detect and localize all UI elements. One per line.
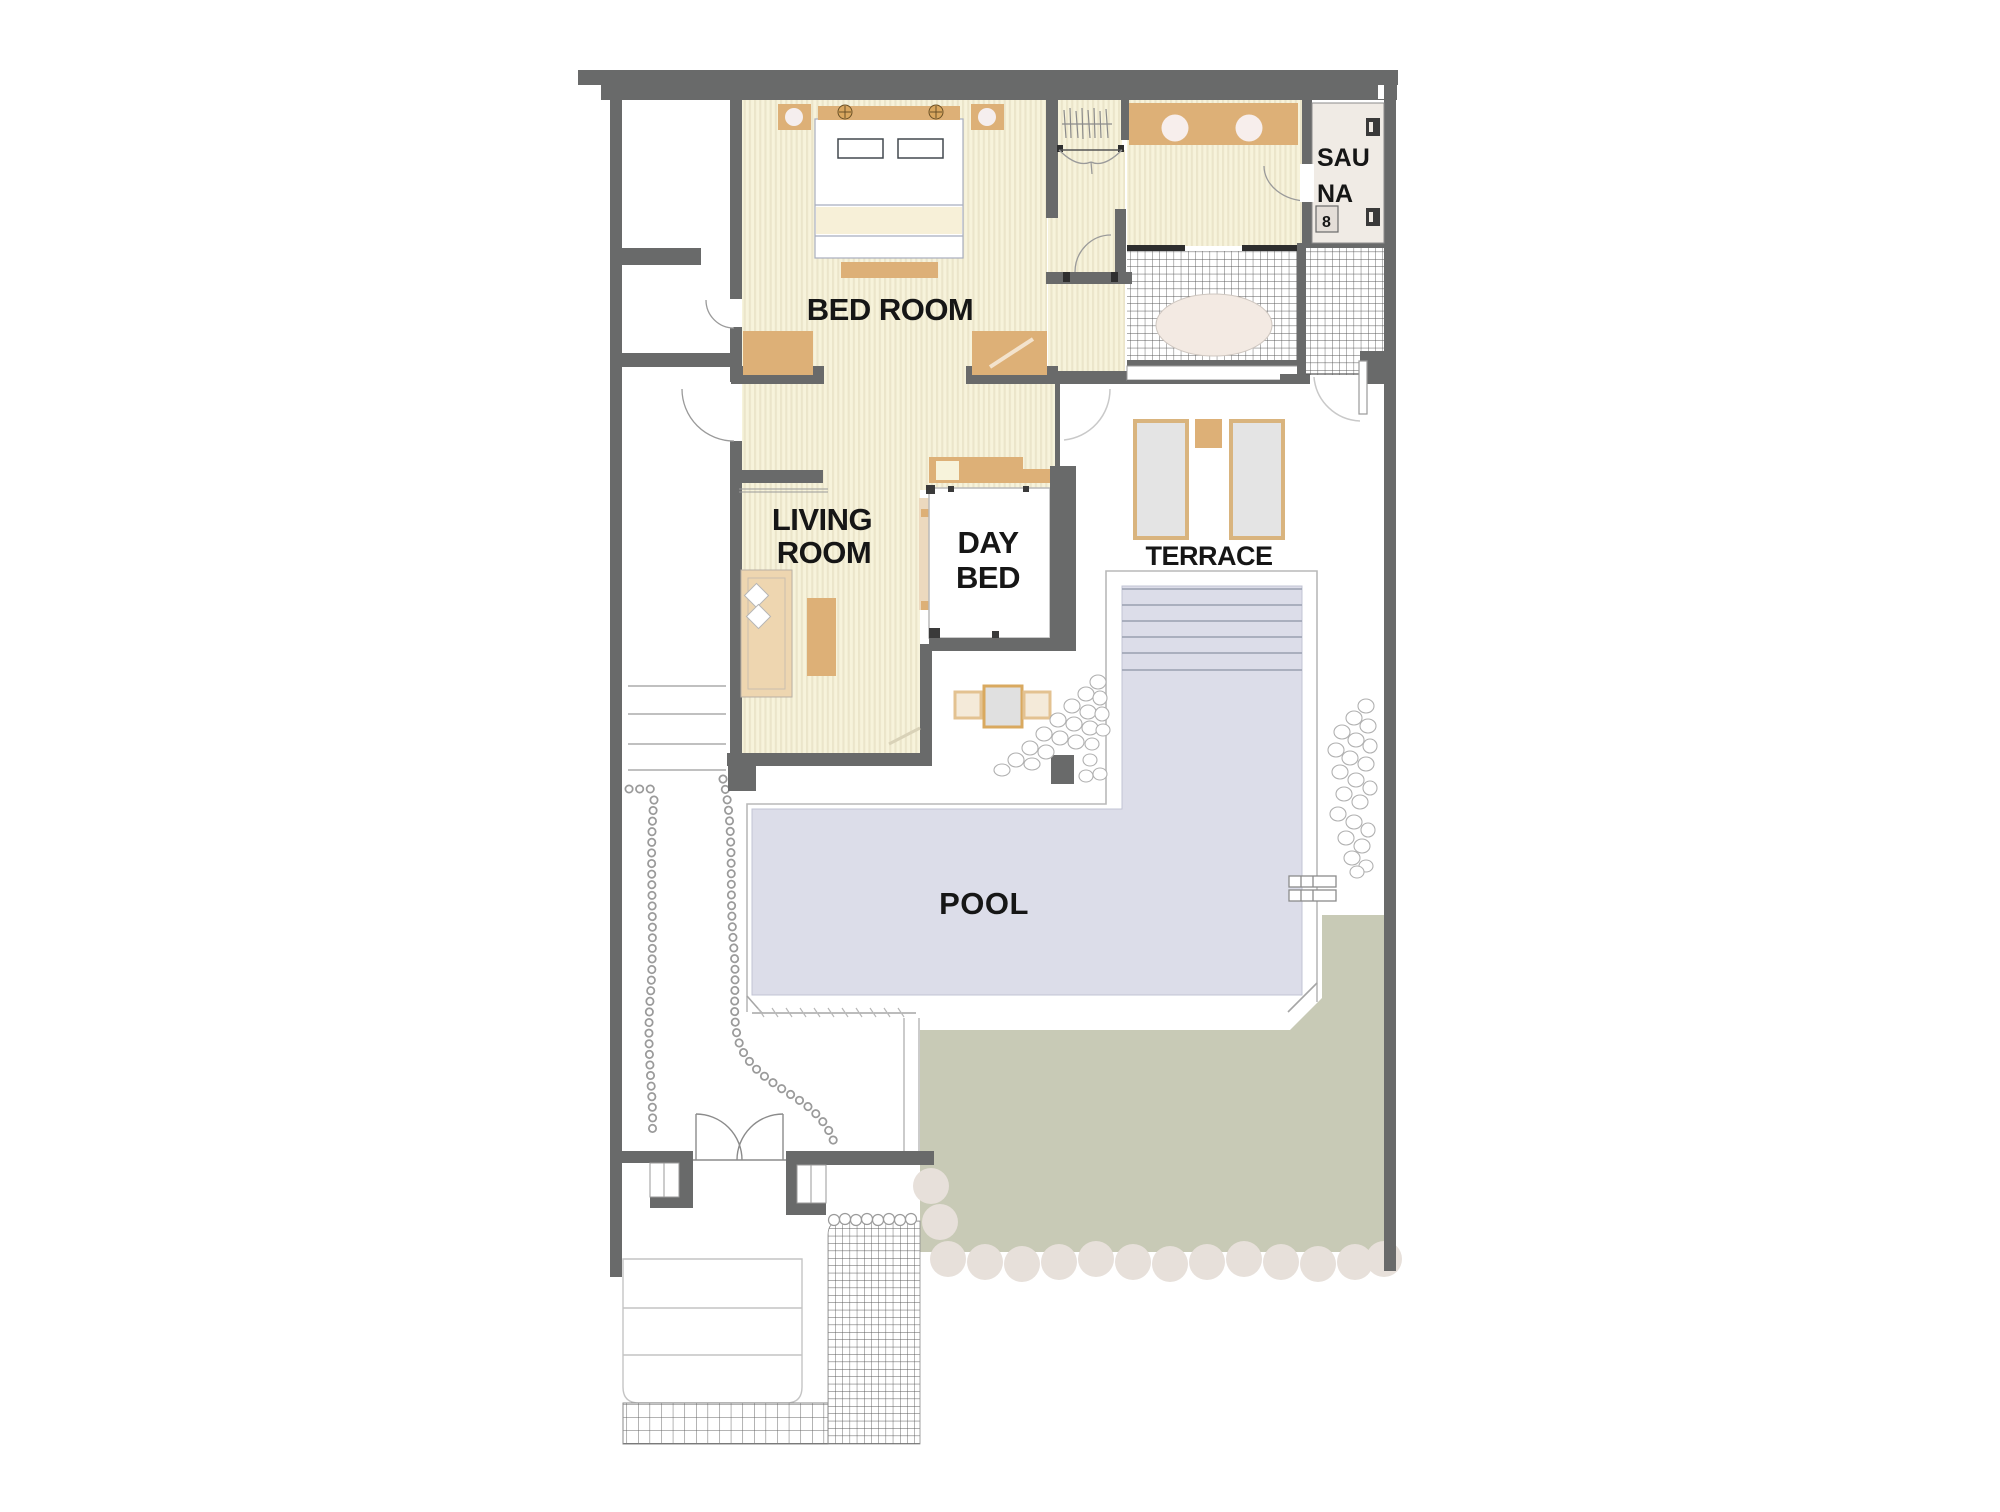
svg-text:BED ROOM: BED ROOM	[807, 292, 974, 327]
svg-text:LIVING: LIVING	[772, 502, 872, 537]
svg-text:POOL: POOL	[939, 886, 1029, 921]
svg-text:SAU: SAU	[1317, 144, 1370, 172]
svg-text:BED: BED	[956, 560, 1020, 595]
svg-text:ROOM: ROOM	[777, 535, 871, 570]
svg-text:DAY: DAY	[957, 525, 1019, 560]
svg-text:NA: NA	[1317, 180, 1353, 208]
svg-text:8: 8	[1322, 214, 1331, 231]
svg-text:TERRACE: TERRACE	[1145, 541, 1272, 571]
